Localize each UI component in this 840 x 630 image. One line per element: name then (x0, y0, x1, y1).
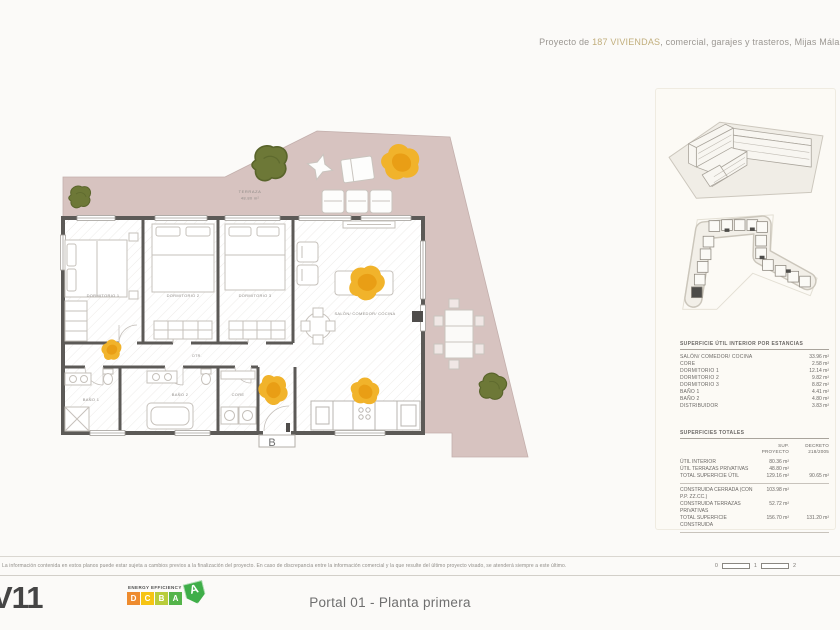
table-row: SALÓN/ COMEDOR/ COCINA33.96 m² (680, 354, 829, 361)
energy-title: ENERGY EFFICIENCY (128, 585, 219, 590)
row-label: DORMITORIO 3 (680, 382, 719, 389)
room-label-dormitorio-1: DORMITORIO 1 (87, 293, 120, 298)
project-prefix: Proyecto de (539, 37, 592, 47)
row-label: DORMITORIO 2 (680, 375, 719, 382)
disclaimer-bar: La información contenida en estos planos… (0, 556, 840, 576)
row-value: 4.41 m² (812, 389, 829, 396)
scale-bar: 0 1 2 (715, 563, 796, 569)
row-value-decreto (789, 487, 829, 501)
scale-number: 1 (754, 563, 757, 569)
row-label: CORE (680, 361, 695, 368)
building-3d-view (661, 95, 831, 207)
totales-construida-block: CONSTRUIDA CERRADA (CON P.P. ZZ.CC.)103.… (680, 487, 829, 533)
row-value: 80.36 m² (753, 459, 789, 466)
row-value: 33.96 m² (809, 354, 829, 361)
scale-segment (722, 563, 750, 569)
room-label-bano-1: BAÑO 1 (83, 397, 100, 402)
disclaimer-text: La información contenida en estos planos… (0, 563, 715, 569)
row-label: TOTAL SUPERFICIE CONSTRUIDA (680, 515, 753, 529)
row-value-decreto (789, 501, 829, 515)
portal-letter-label: B (268, 437, 275, 449)
project-viviendas-count: 187 VIVIENDAS (592, 37, 660, 47)
table-row: TOTAL SUPERFICIE ÚTIL129.16 m²90.65 m² (680, 473, 829, 480)
col-header-decreto: DECRETO 218/2005 (789, 443, 829, 454)
table-row: CONSTRUIDA CERRADA (CON P.P. ZZ.CC.)103.… (680, 487, 829, 501)
table-superficies-totales: SUPERFICIES TOTALES SUP. PROYECTO DECRET… (680, 430, 829, 533)
row-value: 9.82 m² (812, 375, 829, 382)
row-value-decreto (789, 459, 829, 466)
table-row: ÚTIL TERRAZAS PRIVATIVAS48.80 m² (680, 466, 829, 473)
row-value: 8.82 m² (812, 382, 829, 389)
table-row: DORMITORIO 29.82 m² (680, 375, 829, 382)
row-label: BAÑO 2 (680, 396, 700, 403)
tree-icon (252, 146, 287, 181)
energy-letter-c: C (141, 592, 154, 605)
row-value-decreto: 131.20 m² (789, 515, 829, 529)
row-label: DISTRIBUIDOR (680, 403, 718, 410)
row-value: 129.16 m² (753, 473, 789, 480)
table-row: CORE2.58 m² (680, 361, 829, 368)
row-value-decreto (789, 466, 829, 473)
row-value-decreto: 90.65 m² (789, 473, 829, 480)
dormitorio-2-furniture (152, 224, 214, 339)
project-suffix: , comercial, garajes y trasteros, Mijas … (660, 37, 840, 47)
row-value: 52.72 m² (753, 501, 789, 515)
room-label-dtr: DTR. (192, 354, 202, 358)
terrace-area-label: 48.80 m² (241, 196, 260, 201)
terrace-label: TERRAZA (239, 189, 262, 194)
row-label: SALÓN/ COMEDOR/ COCINA (680, 354, 752, 361)
room-label-bano-2: BAÑO 2 (172, 392, 189, 397)
row-label: DORMITORIO 1 (680, 368, 719, 375)
plan-title: Portal 01 - Planta primera (270, 595, 510, 610)
totales-util-block: ÚTIL INTERIOR80.36 m² ÚTIL TERRAZAS PRIV… (680, 459, 829, 484)
table-column-headers: SUP. PROYECTO DECRETO 218/2005 (680, 443, 829, 454)
floor-plan-drawing: TERRAZA 48.80 m² (55, 105, 545, 465)
terrace-door-jamb (412, 311, 423, 322)
room-label-dormitorio-3: DORMITORIO 3 (239, 293, 272, 298)
room-label-salon: SALÓN/ COMEDOR/ COCINA (334, 311, 395, 316)
floor-plan-area: TERRAZA 48.80 m² (55, 105, 545, 465)
col-header-sup-proyecto: SUP. PROYECTO (753, 443, 789, 454)
table-row: DORMITORIO 38.82 m² (680, 382, 829, 389)
table-title: SUPERFICIE ÚTIL INTERIOR POR ESTANCIAS (680, 341, 829, 350)
row-label: ÚTIL INTERIOR (680, 459, 753, 466)
energy-letter-d: D (127, 592, 140, 605)
scale-number: 0 (715, 563, 718, 569)
table-superficie-estancias: SUPERFICIE ÚTIL INTERIOR POR ESTANCIAS S… (680, 341, 829, 410)
tree-icon (69, 186, 91, 208)
table-row: ÚTIL INTERIOR80.36 m² (680, 459, 829, 466)
row-label: CONSTRUIDA TERRAZAS PRIVATIVAS (680, 501, 753, 515)
row-value: 156.70 m² (753, 515, 789, 529)
row-value: 2.58 m² (812, 361, 829, 368)
energy-letter-b: B (155, 592, 168, 605)
project-header: Proyecto de 187 VIVIENDAS, comercial, ga… (539, 37, 840, 47)
row-value: 4.80 m² (812, 396, 829, 403)
room-label-core: CORE (232, 392, 245, 397)
energy-letter-a: A (169, 592, 182, 605)
table-row: DORMITORIO 112.14 m² (680, 368, 829, 375)
row-label: CONSTRUIDA CERRADA (CON P.P. ZZ.CC.) (680, 487, 753, 501)
building-footprint-key (661, 209, 831, 321)
energy-scale: D C B A (127, 592, 219, 605)
sidebar-panel: SUPERFICIE ÚTIL INTERIOR POR ESTANCIAS S… (655, 88, 836, 530)
energy-efficiency-badge: ENERGY EFFICIENCY D C B A A (127, 585, 219, 621)
row-label: BAÑO 1 (680, 389, 700, 396)
dormitorio-3-furniture (225, 224, 285, 339)
scale-segment (761, 563, 789, 569)
kitchen-counter (311, 401, 420, 430)
table-row: TOTAL SUPERFICIE CONSTRUIDA156.70 m²131.… (680, 515, 829, 529)
row-label: ÚTIL TERRAZAS PRIVATIVAS (680, 466, 753, 473)
table-row: BAÑO 14.41 m² (680, 389, 829, 396)
table-title: SUPERFICIES TOTALES (680, 430, 829, 439)
row-value: 3.83 m² (812, 403, 829, 410)
row-value: 12.14 m² (809, 368, 829, 375)
version-label: V11 (0, 580, 42, 616)
table-row: DISTRIBUIDOR3.83 m² (680, 403, 829, 410)
row-value: 48.80 m² (753, 466, 789, 473)
table-row: BAÑO 24.80 m² (680, 396, 829, 403)
row-label: TOTAL SUPERFICIE ÚTIL (680, 473, 753, 480)
row-value: 103.98 m² (753, 487, 789, 501)
scale-number: 2 (793, 563, 796, 569)
table-row: CONSTRUIDA TERRAZAS PRIVATIVAS52.72 m² (680, 501, 829, 515)
room-label-dormitorio-2: DORMITORIO 2 (167, 293, 200, 298)
